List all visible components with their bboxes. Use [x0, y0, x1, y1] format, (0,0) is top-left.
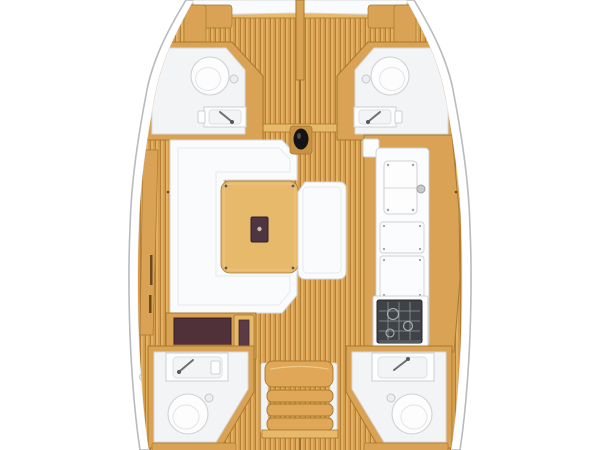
faucet-knob-aft-starboard: [406, 357, 410, 361]
stove-handle: [379, 340, 421, 343]
stair-tread-2: [267, 404, 333, 416]
shower-drain-forward-starboard: [362, 75, 370, 83]
toilet-forward-starboard: [371, 57, 409, 95]
mast-group: [290, 126, 312, 154]
interior: [130, 0, 470, 450]
toilet-forward-port: [191, 57, 229, 95]
stair-top-pad: [265, 361, 333, 387]
galley: [363, 135, 460, 352]
saloon-bench-seat: [298, 182, 346, 279]
stair-bottom-frame: [262, 430, 338, 438]
stair-tread-3: [267, 418, 333, 430]
shelf-fitting-dot: [167, 191, 170, 194]
faucet-knob-forward-port: [230, 120, 234, 124]
shelf-slot-2: [149, 295, 152, 313]
toilet-aft-starboard: [392, 394, 432, 434]
galley-locker-lid-1: [380, 222, 424, 253]
galley-fitting-dot: [455, 191, 458, 194]
yacht-floor-plan: [0, 0, 600, 450]
faucet-knob-aft-port: [177, 370, 181, 374]
table-insert-latch: [257, 227, 261, 231]
aft-berth-edge-port: [152, 443, 236, 450]
toilet-aft-port: [168, 394, 208, 434]
mast-post: [294, 129, 309, 150]
cup-holder-aft-port: [211, 361, 220, 374]
galley-faucet: [417, 185, 425, 193]
shelf-slot-1: [150, 255, 153, 285]
companionway: [261, 361, 338, 450]
shower-drain-aft-starboard: [387, 394, 395, 402]
aft-berth-edge-starboard: [364, 443, 448, 450]
galley-locker-lid-2: [380, 256, 424, 299]
vberth-center-divider: [296, 0, 304, 80]
mast-highlight: [297, 133, 301, 139]
faucet-knob-forward-starboard: [366, 120, 370, 124]
chart-table-desk: [174, 318, 231, 345]
soap-holder-forward-starboard: [395, 111, 402, 123]
basin-aft-starboard: [378, 357, 427, 378]
floor-plan-canvas: [0, 0, 600, 450]
shower-drain-aft-port: [205, 394, 213, 402]
stair-tread-1: [267, 390, 333, 402]
shower-drain-forward-port: [230, 75, 238, 83]
stove-top: [377, 300, 422, 343]
soap-holder-forward-port: [198, 111, 205, 123]
